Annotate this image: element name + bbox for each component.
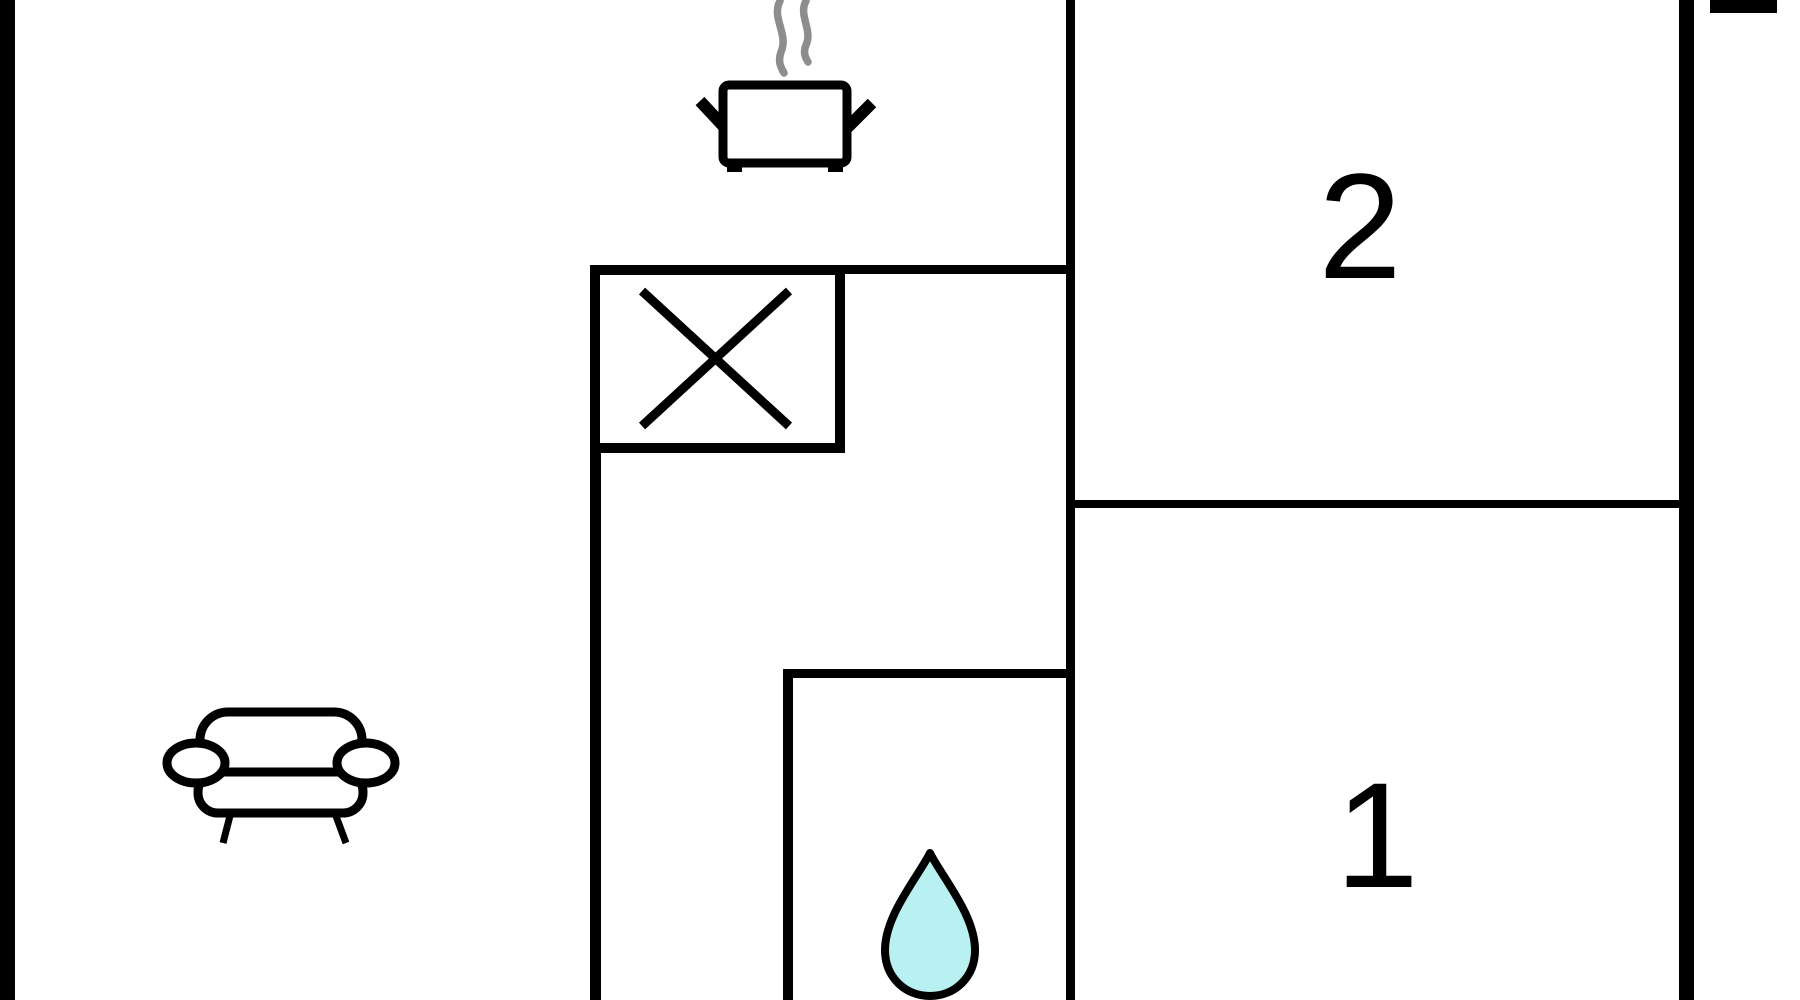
wall-bathroom-left [783,669,793,1000]
pot-body [723,85,847,163]
wall-room-divider [1066,500,1694,508]
wall-left [0,0,15,1000]
sofa-armrest-left [167,743,225,783]
water-drop-icon [875,845,985,1000]
sofa-icon [155,700,405,855]
water-drop-shape [885,853,975,996]
sofa-armrest-right [337,743,395,783]
cooking-pot-icon [690,0,885,180]
sofa-seat [198,772,363,813]
room-1-label: 1 [1307,760,1447,910]
wall-bathroom-top [783,669,1075,678]
floor-plan: 2 1 [0,0,1800,1000]
stove-hob-icon [585,260,850,460]
window-marker-icon [1710,0,1777,13]
room-2-label: 2 [1290,151,1430,301]
steam-icon [777,1,808,73]
